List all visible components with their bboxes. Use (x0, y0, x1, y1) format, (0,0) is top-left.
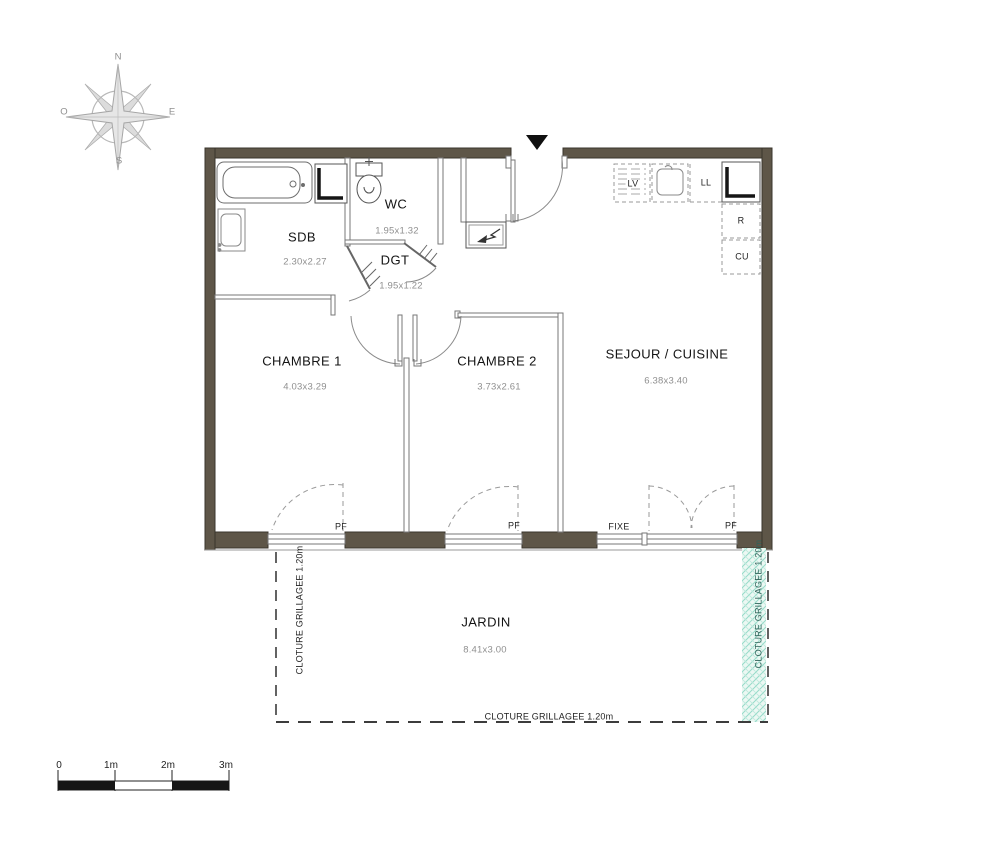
radiator-icon (315, 164, 347, 203)
floor-plan-page: N E S O SDB 2.30x2.27 WC 1.95x1.32 DGT 1… (0, 0, 1000, 857)
room-dims-sejour: 6.38x3.40 (644, 376, 688, 386)
room-label-dgt: DGT (381, 254, 410, 267)
opening-label-pf3: PF (725, 522, 737, 531)
room-label-jardin: JARDIN (461, 616, 510, 629)
appliance-label-lv: LV (626, 180, 641, 189)
fence-label-left: CLOTURE GRILLAGEE 1.20m (296, 546, 305, 675)
room-dims-dgt: 1.95x1.22 (379, 281, 423, 291)
corner-radiator-icon (722, 162, 760, 202)
opening-label-pf1: PF (335, 523, 347, 532)
room-label-sdb: SDB (288, 231, 316, 244)
room-dims-jardin: 8.41x3.00 (463, 645, 507, 655)
fence-label-right: CLOTURE GRILLAGEE 1.20m (755, 540, 764, 669)
compass-west-label: O (60, 107, 67, 117)
opening-label-pf2: PF (508, 522, 520, 531)
room-label-chambre2: CHAMBRE 2 (457, 355, 536, 368)
room-dims-chambre1: 4.03x3.29 (283, 382, 327, 392)
scale-label-1m: 1m (104, 761, 118, 771)
scale-label-3m: 3m (219, 761, 233, 771)
floor-plan-drawing (0, 0, 1000, 857)
garden-boundary (205, 548, 772, 722)
toilet-icon (356, 157, 382, 203)
compass-east-label: E (169, 107, 175, 117)
opening-label-fixe: FIXE (608, 523, 629, 532)
room-dims-sdb: 2.30x2.27 (283, 257, 327, 267)
compass-icon (66, 64, 170, 170)
room-label-sejour: SEJOUR / CUISINE (606, 348, 729, 361)
room-label-chambre1: CHAMBRE 1 (262, 355, 341, 368)
scale-label-2m: 2m (161, 761, 175, 771)
washbasin-icon (218, 209, 245, 251)
entry-radiator-icon (466, 222, 506, 248)
entrance-arrow-icon (526, 135, 548, 150)
appliance-label-ll: LL (701, 179, 712, 188)
appliance-label-cu: CU (735, 253, 749, 262)
scale-bar (58, 770, 229, 791)
fence-label-bottom: CLOTURE GRILLAGEE 1.20m (485, 713, 614, 722)
bathtub-icon (217, 162, 312, 203)
compass-south-label: S (116, 156, 122, 166)
room-label-wc: WC (385, 198, 407, 211)
scale-label-0: 0 (56, 761, 62, 771)
room-dims-chambre2: 3.73x2.61 (477, 382, 521, 392)
appliance-label-r: R (738, 217, 745, 226)
kitchen-sink-icon (652, 164, 688, 202)
compass-north-label: N (115, 52, 122, 62)
room-dims-wc: 1.95x1.32 (375, 226, 419, 236)
